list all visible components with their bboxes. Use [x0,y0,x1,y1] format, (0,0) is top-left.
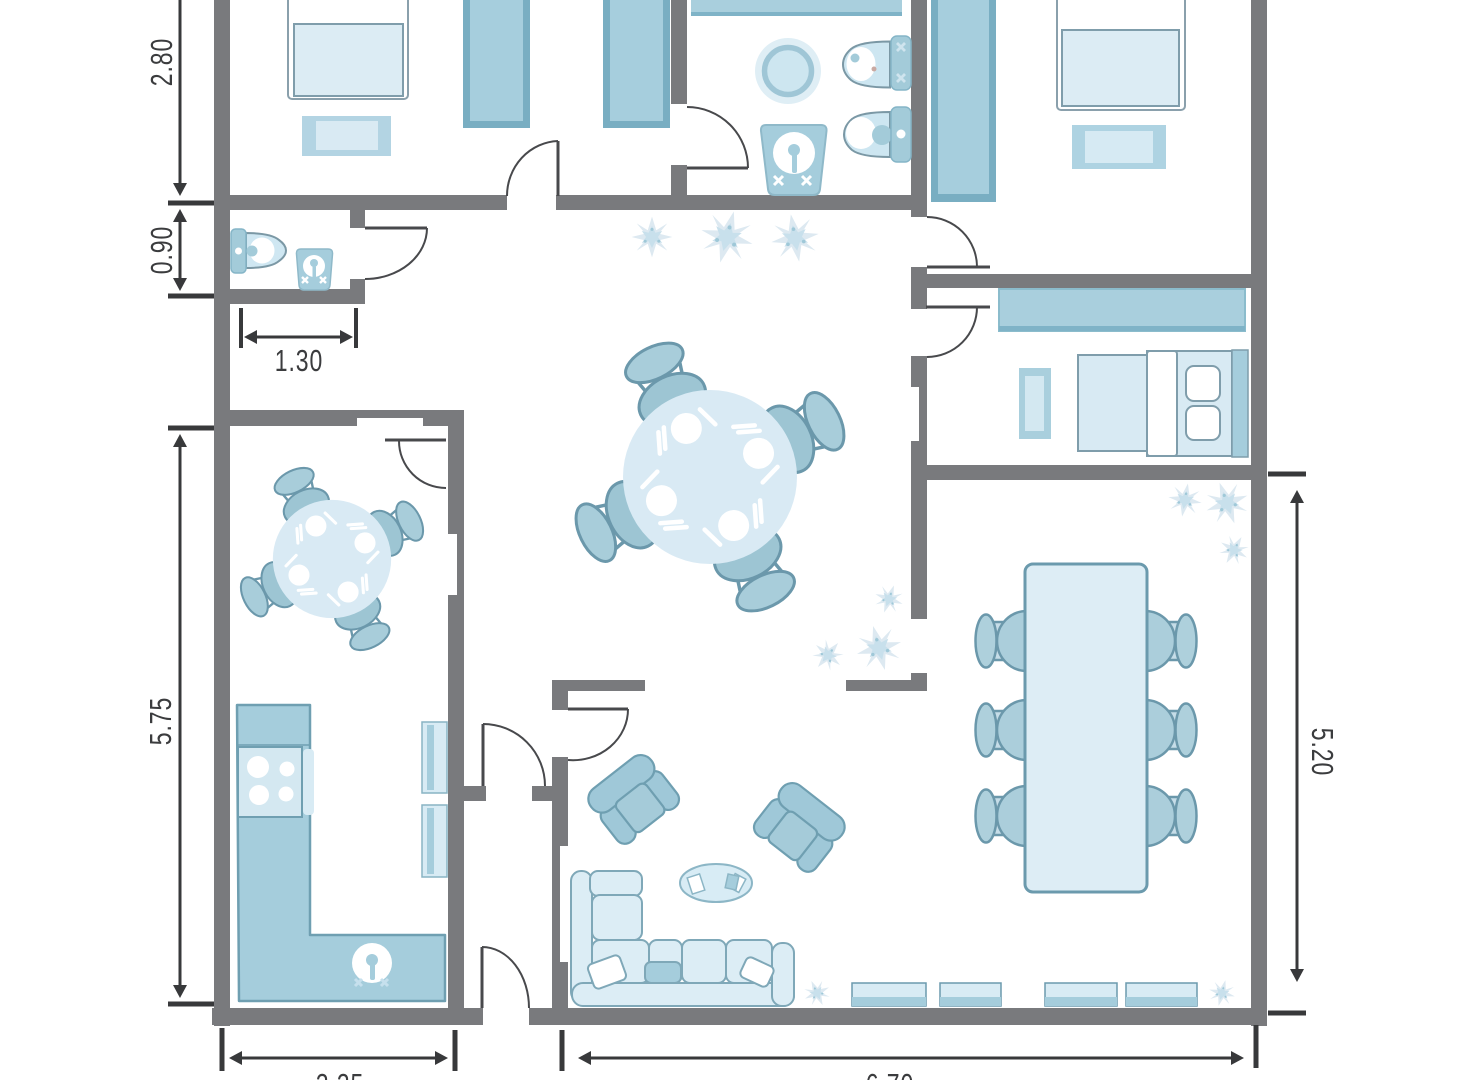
svg-text:2.80: 2.80 [145,38,179,86]
svg-text:5.20: 5.20 [1305,728,1339,776]
svg-text:6.70: 6.70 [866,1068,914,1080]
svg-text:0.90: 0.90 [145,226,179,274]
svg-text:2.25: 2.25 [316,1068,364,1080]
svg-text:5.75: 5.75 [144,697,178,745]
svg-text:1.30: 1.30 [275,344,323,378]
